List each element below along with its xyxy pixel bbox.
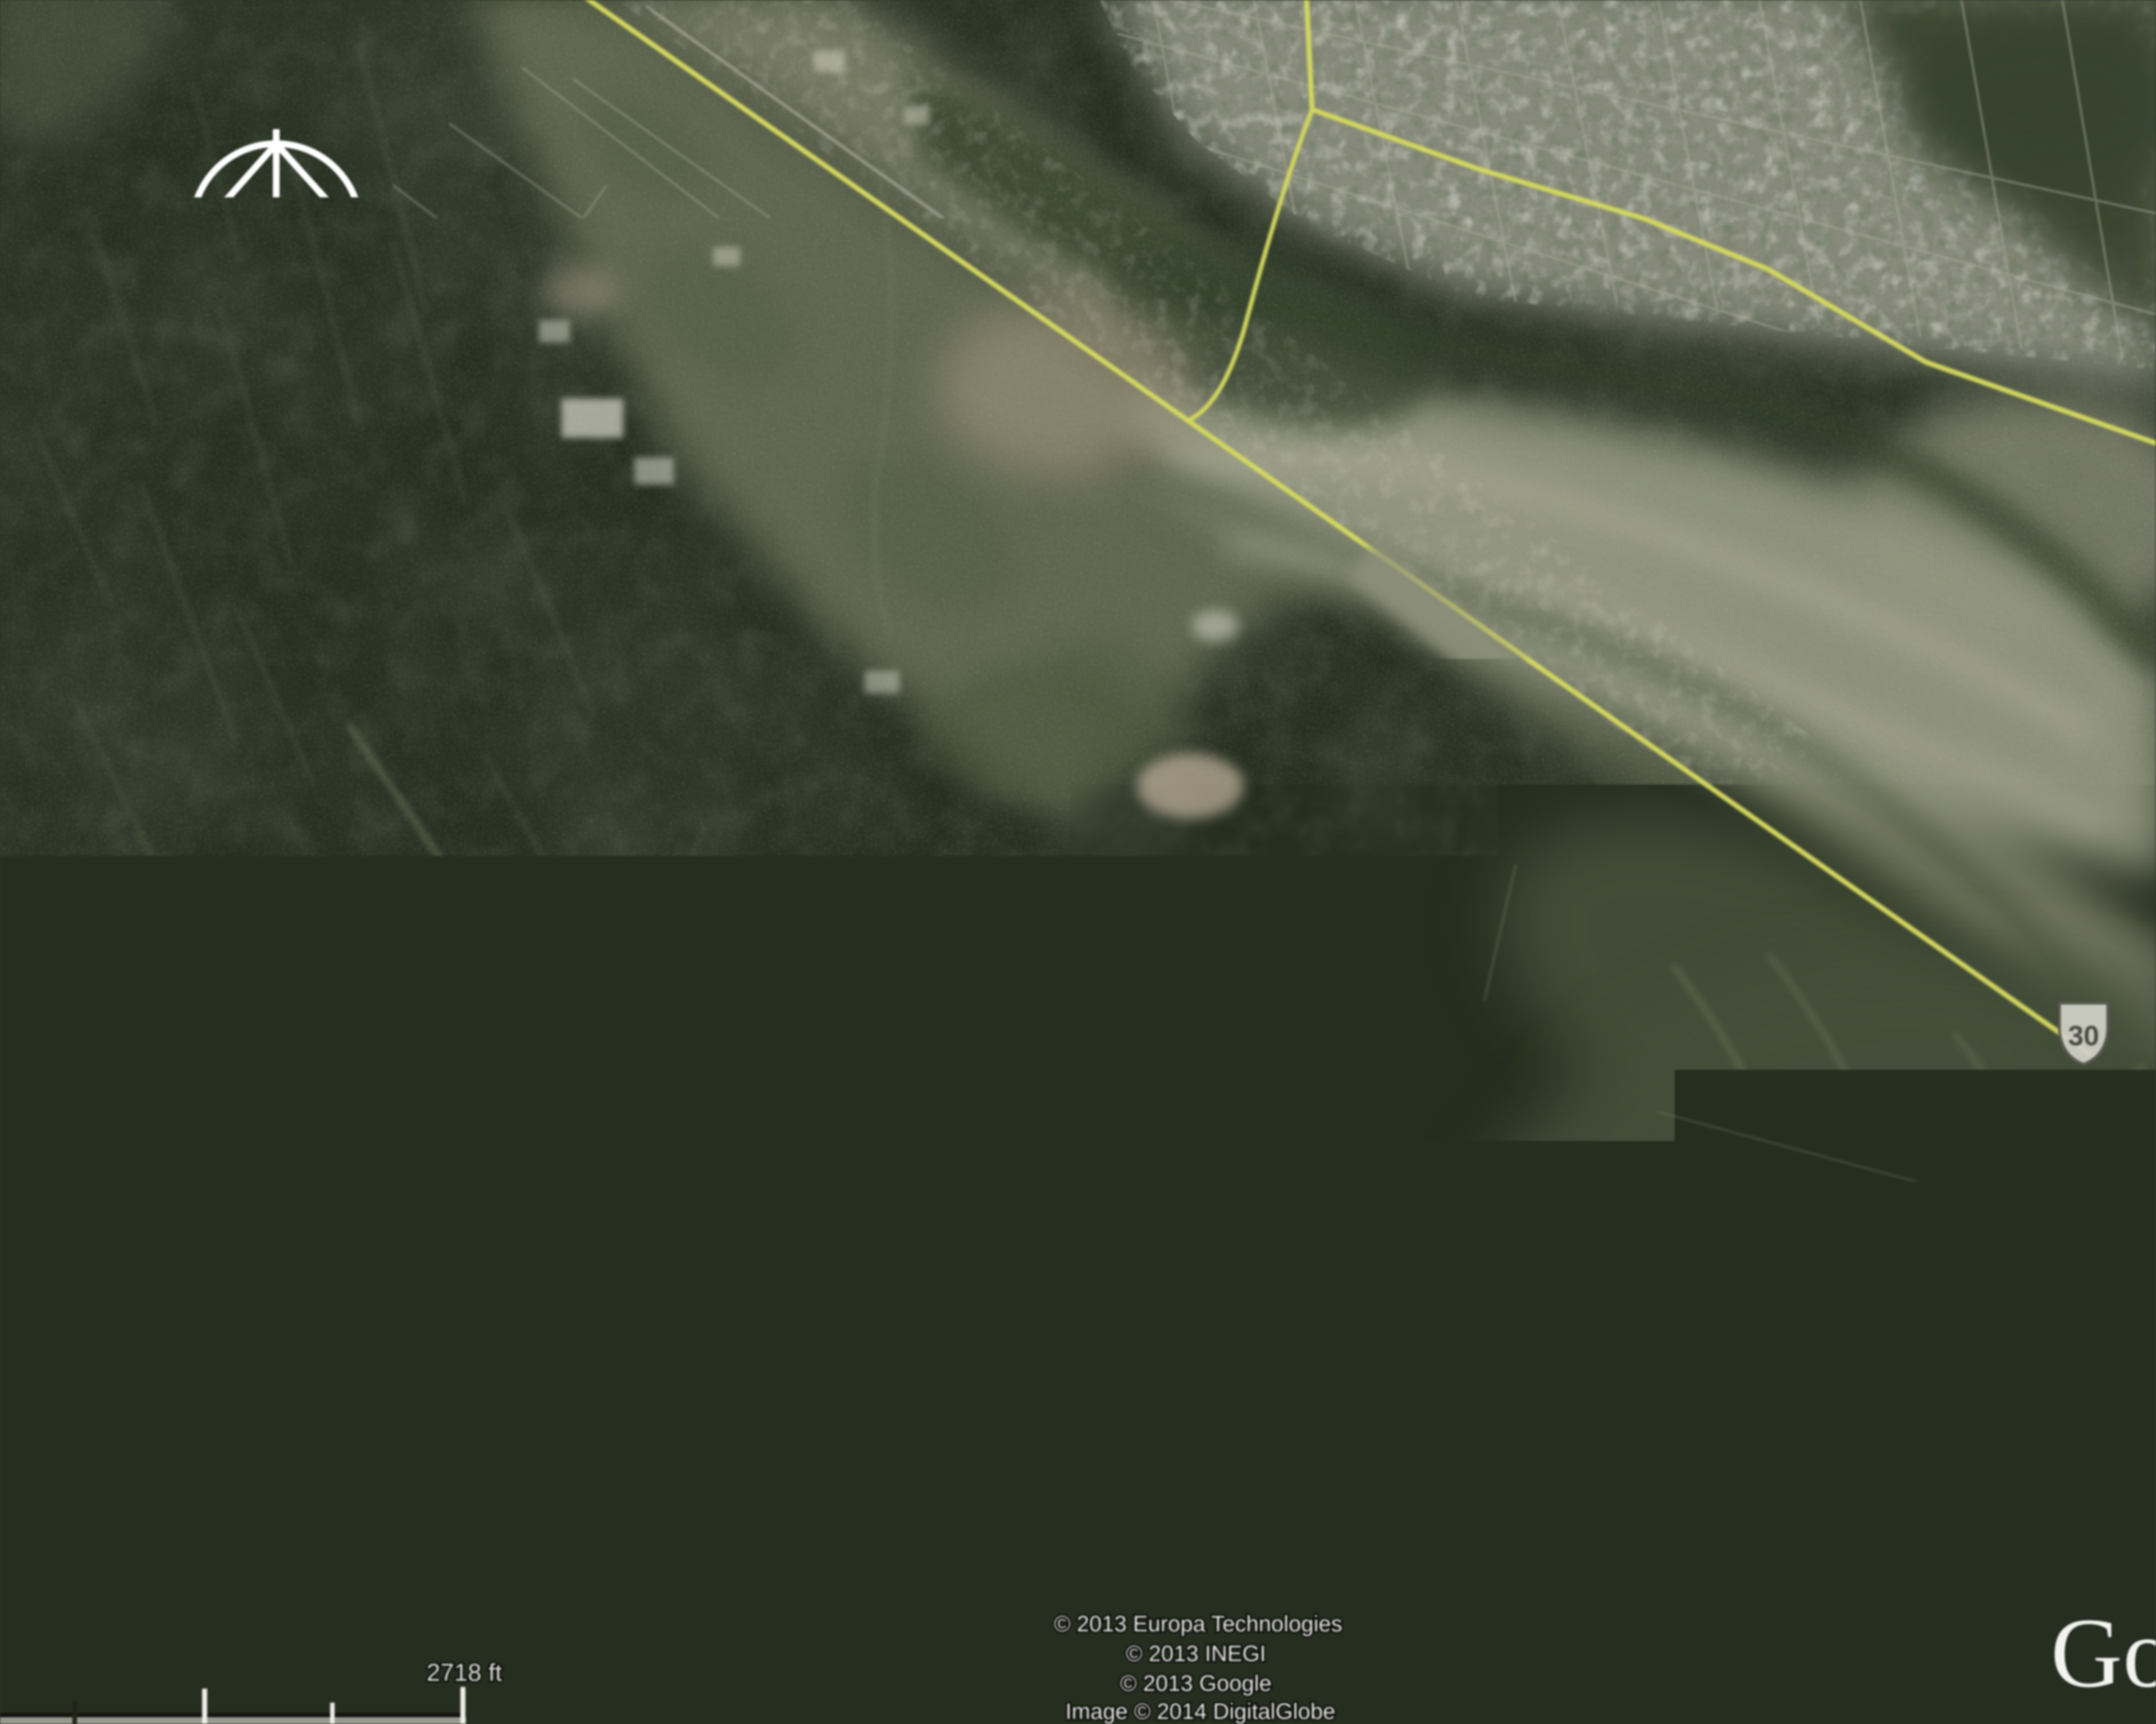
svg-text:Google: Google [2050,1597,2156,1708]
svg-text:© 2013 INEGI: © 2013 INEGI [1126,1641,1266,1666]
svg-text:© 2013 Google: © 2013 Google [1120,1671,1272,1696]
svg-text:NORTE: NORTE [223,279,330,313]
svg-text:Abasolo: Abasolo [1615,208,1756,248]
svg-text:Image © 2014 DigitalGlobe: Image © 2014 DigitalGlobe [1066,1699,1336,1724]
svg-text:2718 ft: 2718 ft [427,1659,503,1686]
svg-text:30: 30 [2068,1020,2099,1051]
svg-text:Abasolo: Abasolo [1449,208,1590,248]
svg-text:© 2013 Europa Technologies: © 2013 Europa Technologies [1054,1612,1342,1636]
